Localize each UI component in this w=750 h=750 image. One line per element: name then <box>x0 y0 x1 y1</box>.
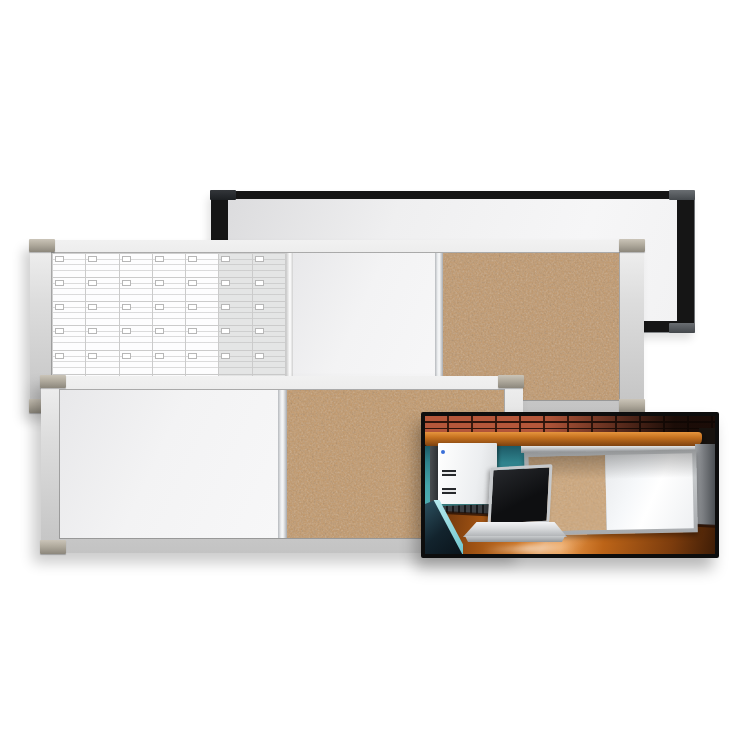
corner-cap <box>619 239 645 252</box>
planner-cell <box>186 254 219 278</box>
planner-date-box <box>122 353 131 359</box>
planner-rail-marks <box>60 247 610 251</box>
corner-cap <box>210 190 236 200</box>
planner-cell <box>219 351 252 375</box>
planner-date-box <box>55 328 64 334</box>
planner-date-box <box>122 280 131 286</box>
planner-date-box <box>188 304 197 310</box>
planner-cell <box>53 326 86 350</box>
planner-cell <box>253 254 286 278</box>
planner-date-box <box>122 328 131 334</box>
planner-cell <box>86 278 119 302</box>
planner-date-box <box>122 256 131 262</box>
planner-date-box <box>221 328 230 334</box>
planner-date-box <box>155 304 164 310</box>
planner-cell <box>253 302 286 326</box>
planner-cell <box>186 326 219 350</box>
planner-date-box <box>88 328 97 334</box>
planner-date-box <box>255 256 264 262</box>
planner-date-box <box>188 280 197 286</box>
planner-cell <box>186 351 219 375</box>
planner-date-box <box>55 280 64 286</box>
corner-cap <box>40 540 66 554</box>
planner-date-box <box>221 280 230 286</box>
section-divider <box>278 390 287 538</box>
planner-cell <box>86 351 119 375</box>
planner-date-box <box>88 304 97 310</box>
planner-date-box <box>155 256 164 262</box>
dry-erase-panel <box>60 390 278 538</box>
laptop-keyboard-deck <box>463 522 567 537</box>
planner-date-box <box>221 256 230 262</box>
planner-date-box <box>88 280 97 286</box>
planner-date-box <box>55 353 64 359</box>
planner-date-box <box>255 304 264 310</box>
planner-cell <box>53 278 86 302</box>
planner-cell <box>120 326 153 350</box>
chair-back-shell <box>425 500 463 554</box>
product-photo-stage <box>0 0 750 750</box>
binder-slot <box>442 470 456 476</box>
planner-cell <box>120 278 153 302</box>
planner-cell <box>153 302 186 326</box>
planner-date-box <box>155 328 164 334</box>
planner-cell <box>53 351 86 375</box>
planner-date-box <box>155 353 164 359</box>
planner-cell <box>53 302 86 326</box>
binder-logo-dot <box>441 450 445 454</box>
planner-date-box <box>88 353 97 359</box>
binder-slot <box>442 488 456 494</box>
planner-cell <box>153 326 186 350</box>
planner-cell <box>253 326 286 350</box>
planner-cell <box>86 302 119 326</box>
planner-cell <box>219 326 252 350</box>
planner-cell <box>153 278 186 302</box>
planner-cell <box>186 302 219 326</box>
planner-date-box <box>255 328 264 334</box>
planner-date-box <box>188 256 197 262</box>
chair-back <box>425 500 463 554</box>
planner-cell <box>120 351 153 375</box>
laptop-front-lip <box>465 536 565 542</box>
planner-date-box <box>122 304 131 310</box>
planner-cell <box>253 351 286 375</box>
laptop-screen <box>488 464 553 525</box>
planner-date-box <box>55 304 64 310</box>
corner-cap <box>669 323 695 333</box>
dry-erase-panel <box>605 453 693 530</box>
planner-date-box <box>188 353 197 359</box>
planner-cell <box>219 254 252 278</box>
planner-cell <box>86 254 119 278</box>
brick-wall <box>425 416 715 433</box>
inset-photo <box>421 412 719 558</box>
corner-cap <box>619 399 645 413</box>
planner-cell <box>219 278 252 302</box>
planner-date-box <box>155 280 164 286</box>
planner-date-box <box>188 328 197 334</box>
planner-cell <box>53 254 86 278</box>
planner-cell <box>153 351 186 375</box>
planner-date-box <box>221 304 230 310</box>
planner-date-box <box>221 353 230 359</box>
planner-cell <box>120 254 153 278</box>
planner-cell <box>120 302 153 326</box>
corner-cap <box>29 239 55 252</box>
planner-date-box <box>255 280 264 286</box>
planner-cell <box>86 326 119 350</box>
corner-cap <box>40 375 66 388</box>
planner-date-box <box>88 256 97 262</box>
planner-cell <box>153 254 186 278</box>
laptop <box>463 466 567 547</box>
corner-cap <box>498 375 524 388</box>
corner-cap <box>669 190 695 200</box>
planner-cell <box>219 302 252 326</box>
planner-cell <box>253 278 286 302</box>
planner-date-box <box>255 353 264 359</box>
planner-date-box <box>55 256 64 262</box>
cubicle-scene <box>425 416 715 554</box>
planner-cell <box>186 278 219 302</box>
